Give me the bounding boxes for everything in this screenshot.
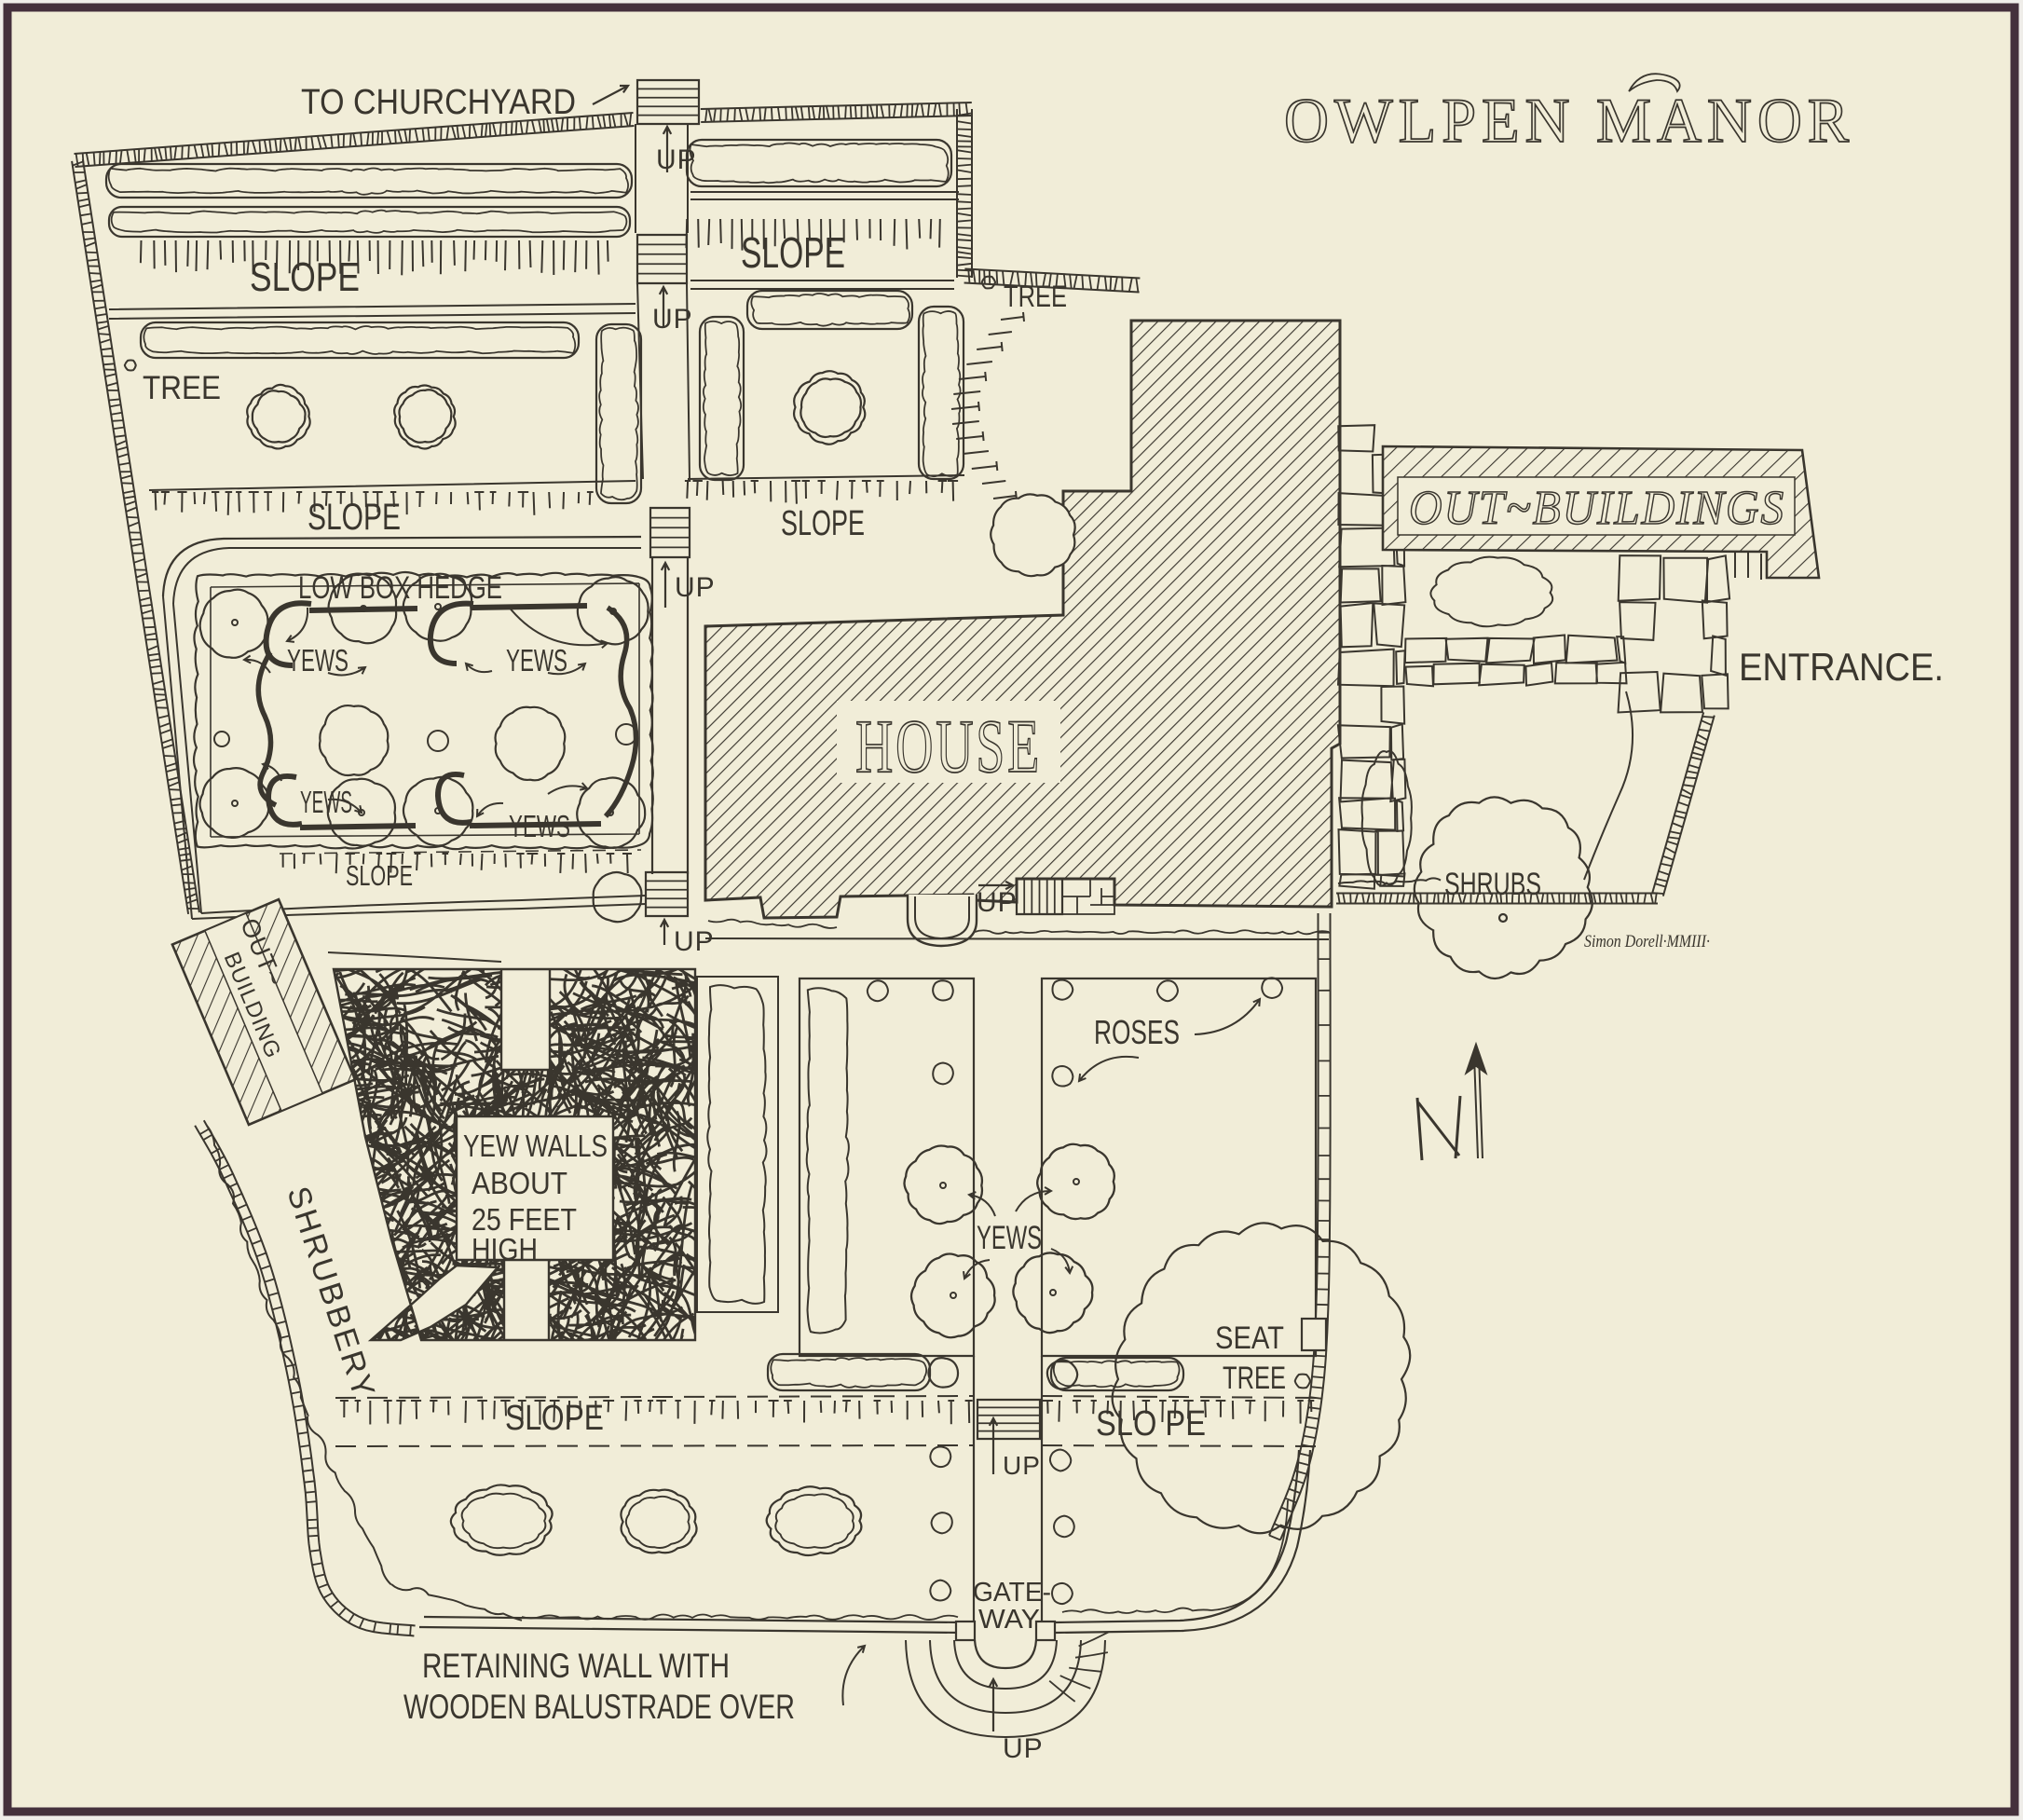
svg-text:HOUSE: HOUSE: [855, 704, 1042, 788]
svg-text:YEW WALLS: YEW WALLS: [463, 1129, 608, 1163]
svg-text:UP: UP: [977, 887, 1018, 918]
svg-text:SLOPE: SLOPE: [505, 1399, 604, 1438]
svg-text:SLOPE: SLOPE: [781, 504, 865, 543]
svg-text:SLO PE: SLO PE: [1096, 1404, 1206, 1444]
svg-text:HIGH: HIGH: [472, 1232, 538, 1266]
svg-text:SEAT: SEAT: [1215, 1321, 1284, 1356]
svg-text:GATE-: GATE-: [973, 1578, 1051, 1608]
svg-text:SLOPE: SLOPE: [741, 228, 845, 277]
svg-text:TREE: TREE: [1004, 280, 1067, 313]
svg-text:UP: UP: [1003, 1733, 1044, 1764]
svg-text:TREE: TREE: [1223, 1361, 1286, 1396]
svg-text:SLOPE: SLOPE: [250, 254, 360, 300]
svg-text:ENTRANCE.: ENTRANCE.: [1739, 645, 1944, 689]
svg-text:OUT~BUILDINGS: OUT~BUILDINGS: [1409, 482, 1785, 535]
svg-text:WAY: WAY: [978, 1605, 1040, 1635]
svg-text:YEWS: YEWS: [509, 809, 570, 843]
svg-text:Simon Dorell·MMIII·: Simon Dorell·MMIII·: [1584, 932, 1710, 951]
svg-text:ROSES: ROSES: [1094, 1013, 1180, 1051]
svg-text:YEWS: YEWS: [977, 1220, 1042, 1256]
svg-text:YEWS: YEWS: [506, 643, 567, 677]
svg-text:UP: UP: [675, 572, 716, 603]
svg-text:WOODEN BALUSTRADE OVER: WOODEN BALUSTRADE OVER: [403, 1688, 795, 1726]
svg-text:UP: UP: [674, 926, 715, 957]
svg-text:ABOUT: ABOUT: [472, 1166, 567, 1200]
svg-text:RETAINING WALL WITH: RETAINING WALL WITH: [422, 1647, 730, 1685]
svg-text:OWLPEN MANOR: OWLPEN MANOR: [1284, 85, 1854, 156]
svg-text:SHRUBS: SHRUBS: [1444, 867, 1541, 902]
svg-text:SLOPE: SLOPE: [308, 497, 401, 538]
svg-text:SLOPE: SLOPE: [346, 859, 413, 892]
svg-text:UP: UP: [1003, 1451, 1041, 1480]
svg-text:TO CHURCHYARD: TO CHURCHYARD: [301, 83, 576, 122]
svg-text:YEWS: YEWS: [300, 785, 352, 819]
svg-text:YEWS: YEWS: [287, 643, 349, 677]
svg-text:TREE: TREE: [143, 370, 221, 406]
